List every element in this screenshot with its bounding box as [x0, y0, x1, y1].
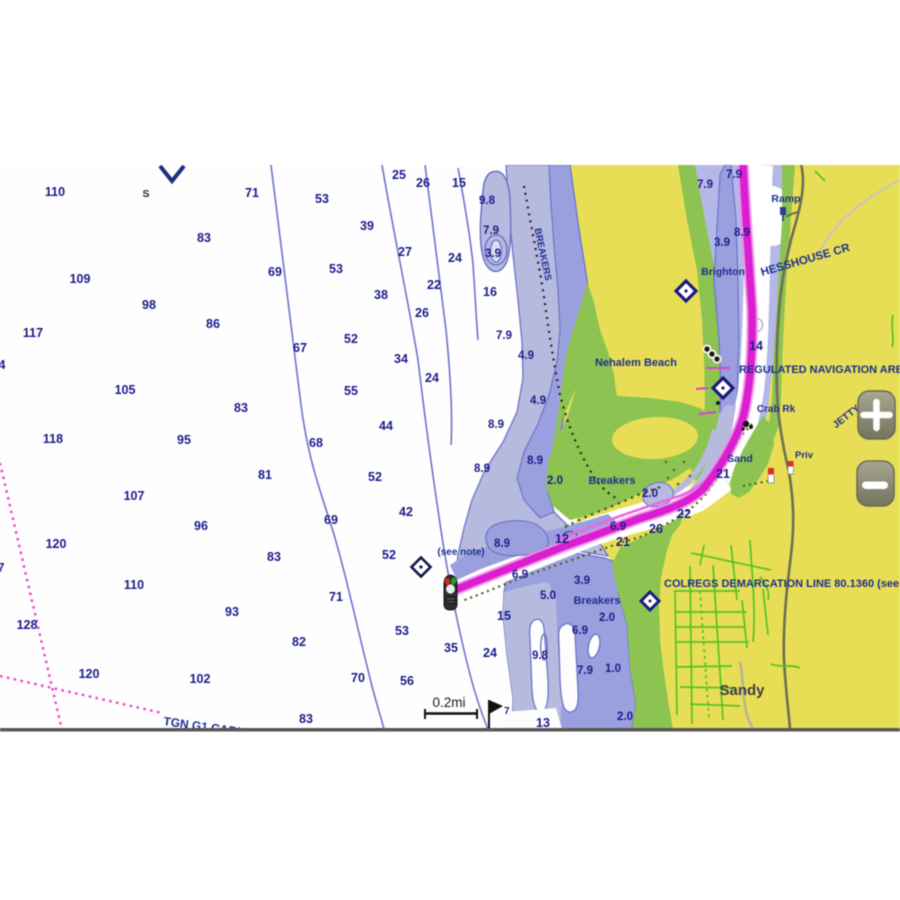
- svg-text:53: 53: [315, 192, 329, 206]
- svg-text:95: 95: [177, 433, 191, 447]
- svg-text:38: 38: [374, 288, 388, 302]
- svg-text:16: 16: [483, 285, 497, 299]
- svg-text:8.9: 8.9: [527, 455, 543, 467]
- svg-text:1.0: 1.0: [605, 663, 621, 675]
- svg-text:7.9: 7.9: [483, 225, 499, 237]
- svg-text:7.9: 7.9: [577, 665, 593, 677]
- svg-text:117: 117: [23, 326, 43, 340]
- svg-text:83: 83: [299, 712, 313, 726]
- svg-text:7.9: 7.9: [697, 179, 713, 191]
- svg-text:9.8: 9.8: [479, 195, 496, 207]
- svg-text:68: 68: [309, 436, 323, 450]
- svg-text:2.0: 2.0: [642, 488, 658, 500]
- svg-text:67: 67: [293, 341, 307, 355]
- svg-text:Breakers: Breakers: [588, 475, 635, 487]
- svg-text:12: 12: [555, 532, 569, 546]
- svg-text:120: 120: [46, 537, 67, 551]
- svg-text:107: 107: [124, 489, 145, 503]
- svg-text:24: 24: [448, 251, 462, 265]
- svg-text:2.0: 2.0: [617, 711, 633, 723]
- svg-text:98: 98: [142, 298, 156, 312]
- svg-text:Priv: Priv: [795, 450, 814, 461]
- svg-text:70: 70: [351, 671, 365, 685]
- svg-text:83: 83: [197, 231, 211, 245]
- svg-text:22: 22: [677, 507, 691, 521]
- svg-text:120: 120: [79, 667, 100, 681]
- svg-text:102: 102: [190, 672, 211, 686]
- svg-text:6.9: 6.9: [610, 521, 626, 533]
- svg-text:35: 35: [444, 641, 458, 655]
- svg-text:110: 110: [45, 185, 65, 199]
- svg-text:26: 26: [649, 522, 663, 536]
- svg-text:5.0: 5.0: [540, 590, 556, 602]
- svg-text:86: 86: [206, 317, 220, 331]
- svg-text:8.9: 8.9: [494, 538, 510, 550]
- svg-text:22: 22: [427, 278, 441, 292]
- svg-text:Crab Rk: Crab Rk: [757, 404, 796, 415]
- svg-text:71: 71: [329, 590, 343, 604]
- svg-text:Sandy: Sandy: [719, 682, 765, 699]
- svg-text:Brighton: Brighton: [701, 266, 745, 278]
- svg-text:118: 118: [43, 432, 63, 446]
- svg-text:8.9: 8.9: [734, 227, 750, 239]
- svg-text:24: 24: [425, 371, 439, 385]
- svg-text:69: 69: [268, 265, 282, 279]
- svg-text:(see note): (see note): [437, 547, 484, 558]
- svg-text:81: 81: [258, 468, 272, 482]
- svg-text:56: 56: [400, 674, 414, 688]
- svg-text:Ramp: Ramp: [771, 193, 800, 205]
- svg-text:Breakers: Breakers: [573, 595, 620, 607]
- svg-text:53: 53: [329, 262, 343, 276]
- svg-text:83: 83: [234, 401, 248, 415]
- svg-text:4.9: 4.9: [530, 395, 546, 407]
- svg-text:52: 52: [382, 548, 396, 562]
- svg-text:96: 96: [194, 519, 208, 533]
- svg-text:8.9: 8.9: [474, 463, 490, 475]
- svg-text:39: 39: [360, 219, 374, 233]
- svg-text:109: 109: [70, 272, 91, 286]
- svg-text:8.9: 8.9: [488, 419, 504, 431]
- svg-text:2.0: 2.0: [547, 475, 563, 487]
- svg-text:52: 52: [368, 470, 382, 484]
- svg-text:83: 83: [267, 550, 281, 564]
- svg-text:93: 93: [225, 605, 239, 619]
- svg-text:0.2mi: 0.2mi: [432, 695, 465, 710]
- svg-text:7.9: 7.9: [726, 169, 742, 181]
- svg-text:21: 21: [716, 467, 730, 481]
- svg-text:3.9: 3.9: [485, 248, 501, 260]
- svg-text:27: 27: [398, 245, 412, 259]
- svg-text:2.0: 2.0: [599, 612, 615, 624]
- svg-text:14: 14: [749, 339, 763, 353]
- svg-text:7: 7: [504, 706, 510, 717]
- svg-text:25: 25: [392, 168, 406, 182]
- svg-text:S: S: [142, 188, 149, 200]
- svg-text:Sand: Sand: [727, 453, 753, 465]
- svg-text:4: 4: [0, 358, 6, 372]
- svg-text:3.9: 3.9: [714, 237, 730, 249]
- svg-text:4.9: 4.9: [518, 350, 534, 362]
- svg-text:26: 26: [416, 176, 430, 190]
- svg-text:55: 55: [344, 384, 358, 398]
- svg-text:13: 13: [536, 716, 550, 730]
- svg-text:42: 42: [399, 505, 413, 519]
- svg-text:6.9: 6.9: [572, 625, 588, 637]
- svg-text:26: 26: [415, 306, 429, 320]
- svg-text:71: 71: [245, 186, 259, 200]
- svg-text:24: 24: [483, 646, 497, 660]
- svg-text:COLREGS DEMARCATION LINE 80.13: COLREGS DEMARCATION LINE 80.1360 (see: [664, 578, 899, 590]
- svg-text:52: 52: [344, 332, 358, 346]
- svg-text:110: 110: [124, 578, 144, 592]
- svg-text:9.8: 9.8: [532, 650, 549, 662]
- svg-text:105: 105: [115, 383, 136, 397]
- svg-text:69: 69: [324, 513, 338, 527]
- svg-text:82: 82: [292, 635, 306, 649]
- svg-text:34: 34: [394, 352, 408, 366]
- svg-text:6.9: 6.9: [512, 569, 528, 581]
- svg-text:7: 7: [0, 561, 5, 575]
- svg-text:44: 44: [379, 419, 393, 433]
- svg-text:53: 53: [395, 624, 409, 638]
- svg-text:21: 21: [616, 535, 630, 549]
- svg-text:7.9: 7.9: [496, 330, 512, 342]
- svg-text:15: 15: [452, 176, 466, 190]
- svg-text:3.9: 3.9: [574, 575, 590, 587]
- svg-text:Nehalem Beach: Nehalem Beach: [595, 357, 677, 369]
- svg-text:REGULATED NAVIGATION AREA: REGULATED NAVIGATION AREA: [739, 364, 900, 376]
- svg-text:15: 15: [497, 609, 511, 623]
- svg-text:128: 128: [17, 618, 38, 632]
